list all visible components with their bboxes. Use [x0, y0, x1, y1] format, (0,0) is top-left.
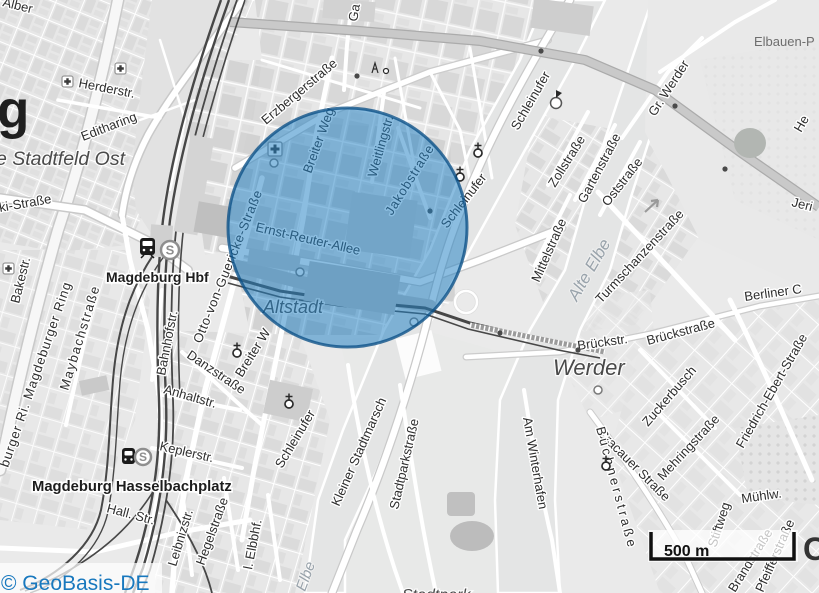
svg-text:© GeoBasis-DE: © GeoBasis-DE [1, 572, 150, 593]
svg-text:Magdeburg Hasselbachplatz: Magdeburg Hasselbachplatz [32, 479, 232, 495]
svg-text:e Stadtfeld Ost: e Stadtfeld Ost [0, 148, 127, 170]
svg-text:S: S [139, 450, 147, 464]
svg-text:Elbauen-P: Elbauen-P [754, 34, 815, 49]
svg-text:Werder: Werder [553, 355, 626, 380]
svg-text:Stadtpark: Stadtpark [402, 587, 471, 593]
svg-text:Ga: Ga [345, 2, 363, 22]
svg-text:g: g [0, 81, 29, 140]
svg-text:500 m: 500 m [664, 543, 709, 560]
svg-text:Magdeburg Hbf: Magdeburg Hbf [106, 269, 209, 285]
svg-text:Cr: Cr [803, 531, 819, 567]
svg-text:S: S [166, 243, 175, 258]
